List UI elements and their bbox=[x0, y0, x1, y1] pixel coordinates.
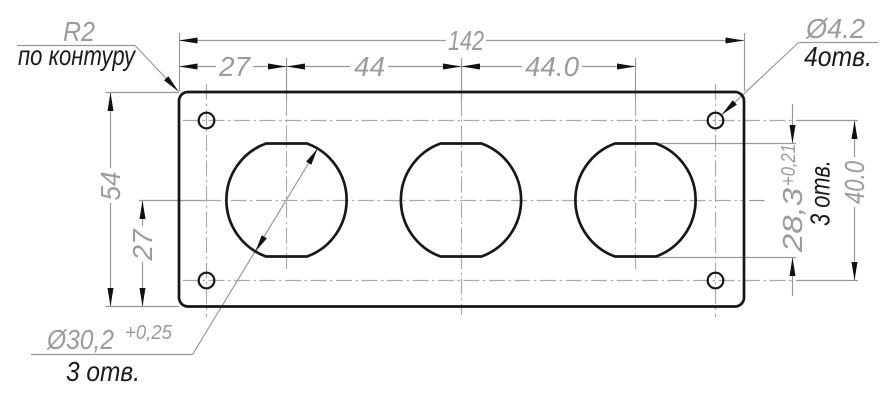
svg-text:3 отв.: 3 отв. bbox=[66, 356, 140, 387]
svg-text:+0,25: +0,25 bbox=[125, 322, 173, 344]
svg-text:142: 142 bbox=[448, 25, 484, 56]
svg-text:по контуру: по контуру bbox=[18, 40, 137, 71]
svg-text:+0,21: +0,21 bbox=[778, 144, 800, 186]
svg-text:4отв.: 4отв. bbox=[804, 41, 872, 72]
svg-text:3 отв.: 3 отв. bbox=[805, 160, 836, 226]
svg-text:40.0: 40.0 bbox=[839, 161, 870, 204]
svg-text:54: 54 bbox=[95, 172, 126, 201]
svg-text:Ø4.2: Ø4.2 bbox=[805, 13, 865, 44]
svg-text:44.0: 44.0 bbox=[525, 51, 579, 82]
svg-text:27: 27 bbox=[127, 228, 158, 261]
svg-text:Ø30,2: Ø30,2 bbox=[46, 324, 114, 355]
svg-text:44: 44 bbox=[354, 51, 385, 82]
svg-text:27: 27 bbox=[218, 51, 251, 82]
